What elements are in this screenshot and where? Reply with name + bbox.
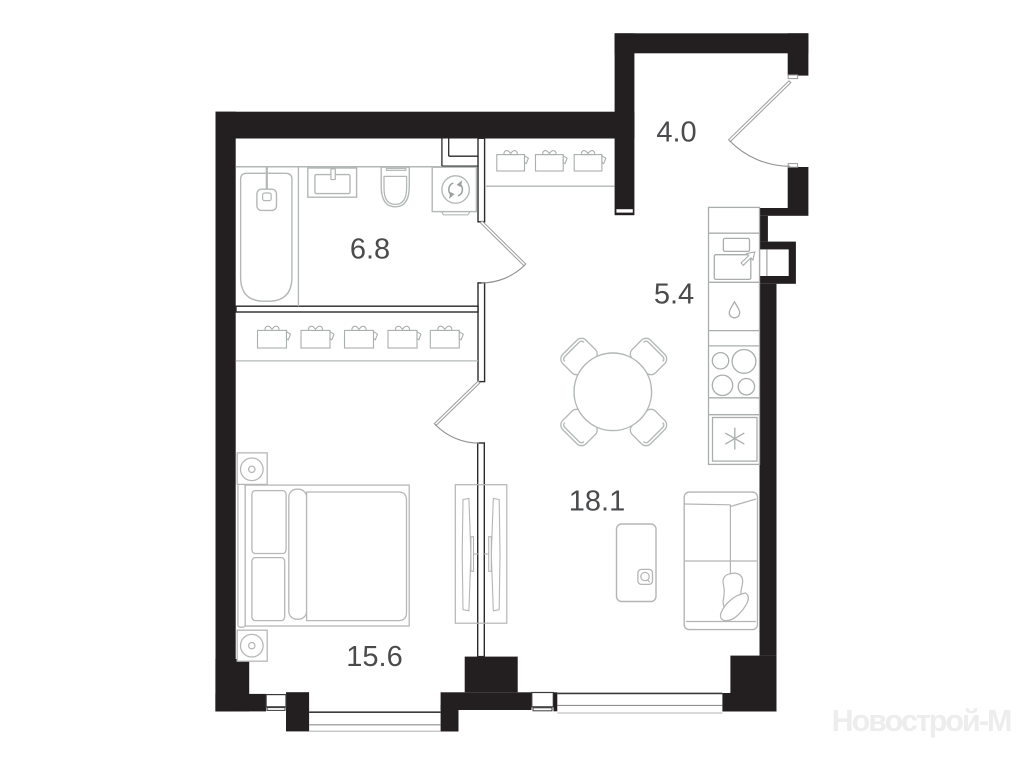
svg-text:5.4: 5.4 bbox=[654, 279, 694, 311]
svg-text:6.8: 6.8 bbox=[350, 234, 390, 266]
svg-text:15.6: 15.6 bbox=[346, 641, 402, 673]
svg-text:Новострой-М: Новострой-М bbox=[832, 704, 1011, 738]
svg-text:18.1: 18.1 bbox=[569, 486, 625, 518]
svg-text:4.0: 4.0 bbox=[656, 117, 696, 149]
